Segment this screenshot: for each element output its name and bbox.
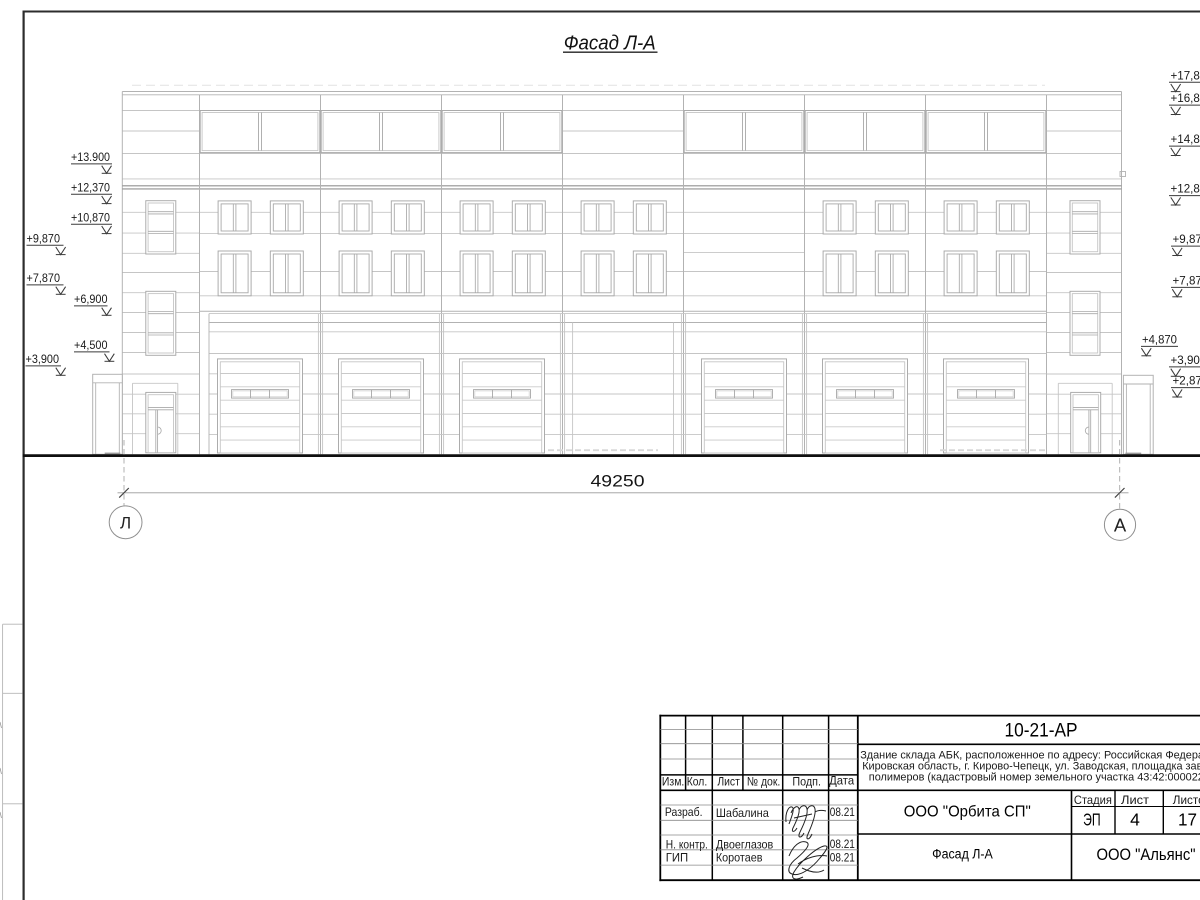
svg-text:+2,870: +2,870: [1173, 375, 1200, 388]
svg-text:+14,870: +14,870: [1171, 133, 1200, 146]
svg-text:Коротаев: Коротаев: [716, 850, 763, 864]
svg-text:08.21: 08.21: [830, 805, 855, 819]
svg-text:4: 4: [1130, 809, 1140, 829]
svg-text:ГИП: ГИП: [666, 850, 688, 864]
svg-text:полимеров (кадастровый номер з: полимеров (кадастровый номер земельного …: [869, 772, 1200, 784]
svg-text:Кировская область, г. Кирово-Ч: Кировская область, г. Кирово-Чепецк, ул.…: [862, 760, 1200, 772]
svg-text:+13.900: +13.900: [71, 151, 110, 164]
svg-text:№ док.: № док.: [747, 774, 781, 788]
svg-text:10-21-АР: 10-21-АР: [1005, 719, 1078, 741]
svg-text:+17,870: +17,870: [1171, 69, 1200, 82]
svg-text:+7,870: +7,870: [27, 272, 61, 285]
svg-text:+4,870: +4,870: [1142, 334, 1177, 347]
svg-text:+4,500: +4,500: [74, 339, 108, 352]
svg-text:ООО "Альянс": ООО "Альянс": [1097, 846, 1196, 864]
svg-text:Фасад Л-А: Фасад Л-А: [564, 33, 656, 55]
svg-text:Разраб.: Разраб.: [665, 805, 703, 819]
svg-text:ООО "Орбита СП": ООО "Орбита СП": [904, 804, 1031, 821]
svg-text:Л: Л: [120, 514, 131, 533]
svg-text:ЭП: ЭП: [1083, 809, 1101, 829]
svg-text:Фасад Л-А: Фасад Л-А: [932, 847, 993, 863]
svg-text:+16,870: +16,870: [1171, 92, 1200, 105]
svg-text:+3,900: +3,900: [26, 353, 60, 366]
svg-text:+12,370: +12,370: [71, 181, 110, 194]
svg-text:Изм.: Изм.: [662, 774, 684, 788]
svg-text:Шабалина: Шабалина: [716, 806, 769, 820]
svg-text:Лист: Лист: [1121, 793, 1150, 807]
svg-text:+9,870: +9,870: [27, 232, 61, 245]
svg-text:А: А: [1114, 514, 1127, 535]
svg-text:Лист: Лист: [717, 774, 740, 788]
svg-text:Дата: Дата: [829, 774, 854, 788]
svg-text:08.21: 08.21: [830, 851, 855, 865]
svg-text:Листов: Листов: [1173, 793, 1200, 807]
svg-text:+12,870: +12,870: [1171, 183, 1200, 196]
svg-text:08.21: 08.21: [830, 837, 855, 851]
svg-text:+9,870: +9,870: [1173, 233, 1200, 246]
svg-text:Кол.: Кол.: [687, 774, 707, 788]
svg-text:+7,870: +7,870: [1173, 275, 1200, 288]
svg-text:+10,870: +10,870: [71, 211, 110, 224]
svg-text:17: 17: [1178, 809, 1197, 829]
svg-text:49250: 49250: [591, 473, 645, 491]
svg-text:Подп.: Подп.: [792, 774, 821, 788]
svg-text:+3,900: +3,900: [1171, 354, 1200, 367]
svg-text:+6,900: +6,900: [74, 293, 108, 306]
svg-text:Стадия: Стадия: [1074, 793, 1112, 807]
